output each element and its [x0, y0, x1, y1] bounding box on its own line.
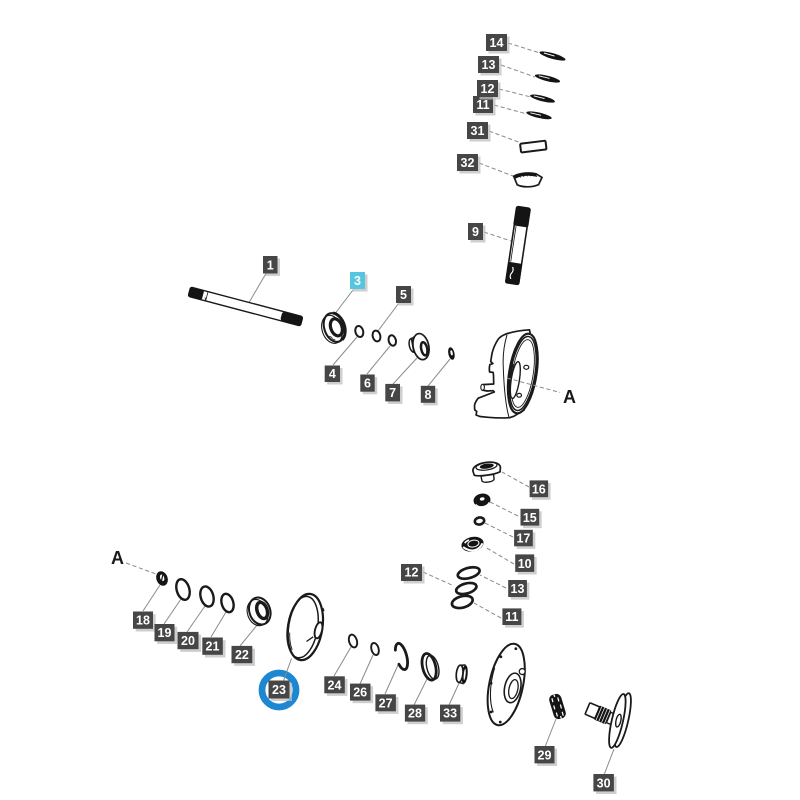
svg-text:A: A — [111, 548, 124, 568]
svg-text:29: 29 — [538, 749, 552, 763]
svg-text:8: 8 — [425, 388, 432, 402]
svg-text:22: 22 — [235, 648, 249, 662]
svg-text:20: 20 — [181, 634, 195, 648]
svg-text:3: 3 — [354, 274, 361, 288]
svg-text:4: 4 — [329, 367, 336, 381]
svg-text:11: 11 — [505, 610, 518, 624]
svg-text:7: 7 — [389, 386, 396, 400]
svg-text:14: 14 — [490, 36, 504, 50]
svg-text:12: 12 — [481, 82, 495, 96]
svg-text:9: 9 — [472, 225, 479, 239]
svg-text:17: 17 — [516, 532, 530, 546]
svg-text:18: 18 — [136, 614, 150, 628]
svg-text:10: 10 — [518, 557, 532, 571]
svg-text:30: 30 — [597, 777, 611, 791]
svg-text:28: 28 — [408, 707, 422, 721]
svg-text:16: 16 — [532, 482, 546, 496]
svg-text:15: 15 — [523, 511, 537, 525]
svg-text:33: 33 — [443, 707, 457, 721]
svg-text:32: 32 — [461, 156, 475, 170]
svg-text:21: 21 — [206, 640, 220, 654]
svg-text:11: 11 — [476, 98, 489, 112]
svg-text:6: 6 — [364, 377, 371, 391]
svg-text:13: 13 — [511, 582, 525, 596]
svg-text:23: 23 — [272, 683, 286, 697]
svg-text:27: 27 — [379, 696, 393, 710]
svg-text:12: 12 — [405, 566, 419, 580]
svg-text:19: 19 — [158, 626, 172, 640]
svg-text:13: 13 — [482, 58, 496, 72]
svg-text:24: 24 — [328, 678, 342, 692]
svg-text:5: 5 — [400, 288, 407, 302]
svg-text:26: 26 — [353, 686, 367, 700]
svg-text:A: A — [563, 387, 576, 407]
svg-text:1: 1 — [267, 259, 274, 273]
svg-text:31: 31 — [471, 124, 485, 138]
